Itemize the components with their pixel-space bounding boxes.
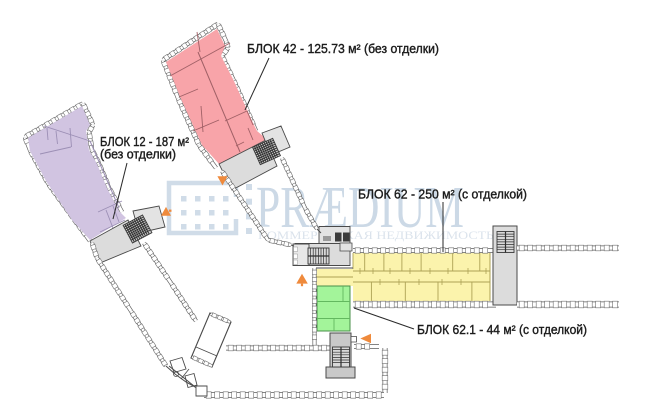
svg-text:КОММЕРЧЕСКАЯ НЕДВИЖИМОСТЬ: КОММЕРЧЕСКАЯ НЕДВИЖИМОСТЬ bbox=[258, 228, 494, 242]
svg-text:(без отделки): (без отделки) bbox=[100, 147, 176, 162]
svg-text:БЛОК 62.1 - 44 м² (с отделкой): БЛОК 62.1 - 44 м² (с отделкой) bbox=[417, 322, 587, 337]
svg-text:БЛОК 42 - 125.73 м² (без отдел: БЛОК 42 - 125.73 м² (без отделки) bbox=[247, 41, 439, 56]
svg-text:БЛОК 62 - 250 м² (с отделкой): БЛОК 62 - 250 м² (с отделкой) bbox=[358, 187, 527, 202]
